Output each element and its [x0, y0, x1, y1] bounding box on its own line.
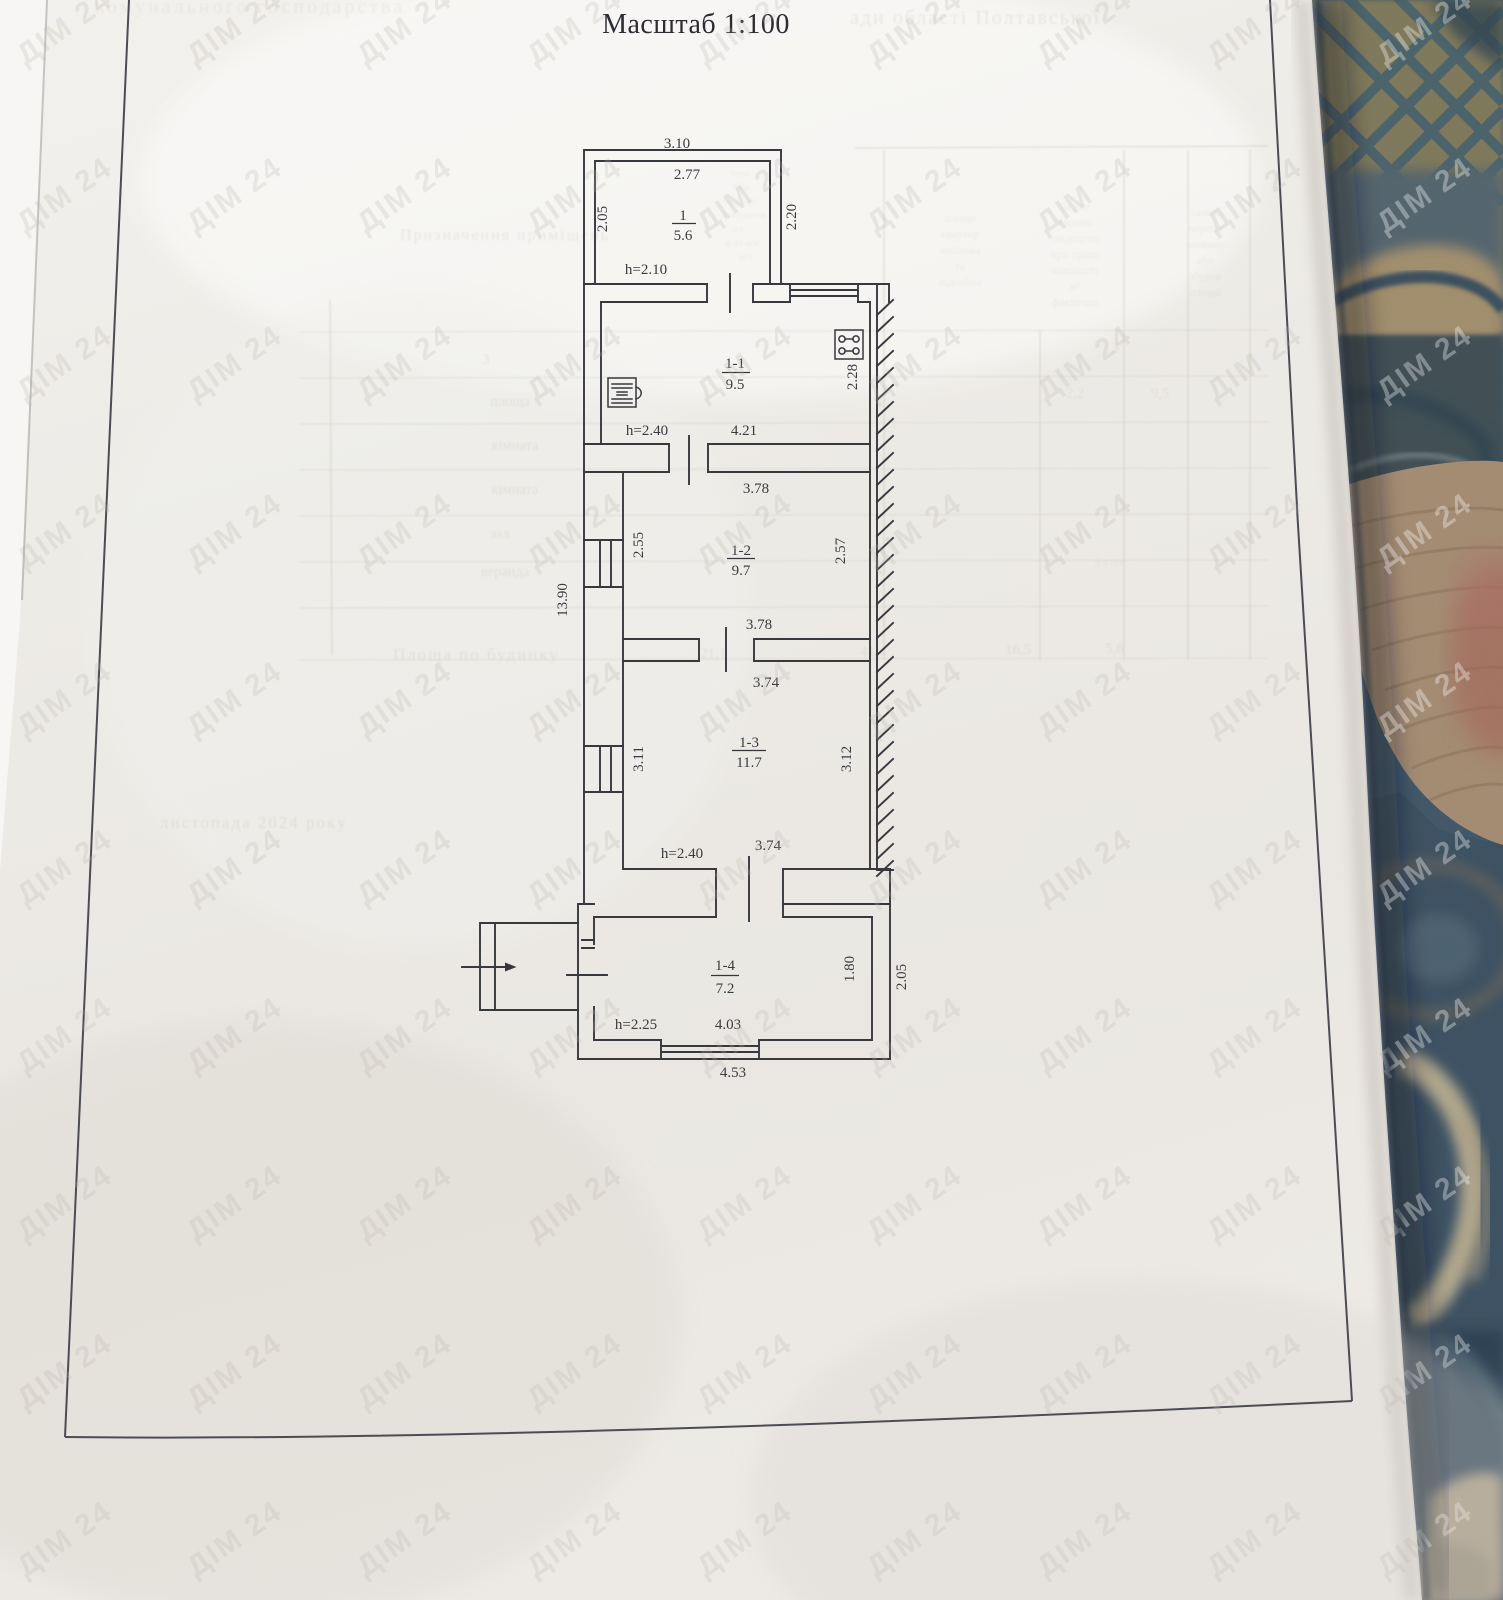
- svg-text:фактично: фактично: [1052, 297, 1099, 309]
- svg-text:2.28: 2.28: [845, 364, 861, 390]
- svg-text:1-3: 1-3: [739, 735, 759, 751]
- svg-text:3.12: 3.12: [839, 746, 855, 772]
- svg-text:2.57: 2.57: [833, 537, 849, 564]
- svg-text:9,5: 9,5: [1151, 386, 1169, 402]
- svg-text:підсобна: підсобна: [938, 277, 981, 289]
- svg-text:ановано: ановано: [1185, 239, 1225, 251]
- svg-text:5.6: 5.6: [674, 228, 693, 244]
- svg-text:3.78: 3.78: [746, 617, 772, 633]
- svg-text:Призначення приміщень: Призначення приміщень: [400, 227, 610, 244]
- svg-text:h=2.40: h=2.40: [661, 846, 703, 862]
- svg-text:13.90: 13.90: [555, 583, 571, 617]
- svg-text:16,5: 16,5: [1005, 642, 1031, 658]
- svg-text:ф в при: ф в при: [1095, 557, 1125, 568]
- svg-text:кімната: кімната: [491, 482, 539, 498]
- svg-text:та: та: [955, 261, 965, 273]
- svg-text:свідоцтво: свідоцтво: [1051, 233, 1099, 245]
- svg-text:7.2: 7.2: [716, 981, 735, 997]
- svg-text:веранда: веранда: [481, 564, 530, 580]
- svg-text:площа: площа: [490, 394, 530, 410]
- svg-text:про право: про право: [1051, 249, 1100, 261]
- svg-text:41,4: 41,4: [860, 644, 887, 660]
- svg-text:1: 1: [679, 208, 687, 224]
- svg-text:Площа по будинку: Площа по будинку: [393, 645, 560, 664]
- svg-text:1-4: 1-4: [715, 958, 735, 974]
- svg-text:3: 3: [482, 352, 489, 368]
- svg-text:h=2.40: h=2.40: [626, 423, 668, 439]
- svg-text:3.78: 3.78: [743, 481, 769, 497]
- svg-text:зал: зал: [490, 526, 510, 542]
- svg-text:вул: вул: [739, 253, 752, 263]
- svg-text:пл: пл: [733, 225, 743, 235]
- svg-text:21,1: 21,1: [700, 646, 726, 662]
- svg-text:1.80: 1.80: [842, 956, 858, 982]
- svg-text:2.55: 2.55: [631, 532, 647, 558]
- svg-text:житлова: житлова: [939, 245, 981, 257]
- svg-text:h=2.10: h=2.10: [625, 262, 667, 278]
- svg-text:5,6: 5,6: [1105, 641, 1124, 657]
- svg-text:3.10: 3.10: [664, 136, 690, 152]
- svg-text:3.11: 3.11: [631, 746, 647, 772]
- svg-text:площа: площа: [944, 213, 976, 225]
- svg-text:11.7: 11.7: [736, 755, 762, 771]
- svg-text:збудов: збудов: [1189, 271, 1222, 283]
- svg-text:2.05: 2.05: [894, 964, 910, 990]
- svg-text:2.20: 2.20: [784, 204, 800, 230]
- svg-text:4.21: 4.21: [731, 423, 757, 439]
- svg-text:листопада 2024 року: листопада 2024 року: [160, 813, 348, 832]
- svg-text:площа: площа: [1189, 287, 1221, 299]
- svg-text:9.7: 9.7: [732, 563, 751, 579]
- svg-text:власності: власності: [1052, 265, 1099, 277]
- svg-text:2.77: 2.77: [674, 167, 701, 183]
- svg-text:ф вл асн: ф вл асн: [725, 238, 759, 249]
- svg-text:або: або: [1197, 255, 1214, 267]
- svg-text:2.05: 2.05: [595, 206, 611, 232]
- svg-text:м²: м²: [1070, 281, 1081, 293]
- svg-text:кімната: кімната: [491, 438, 539, 454]
- svg-text:квартир: квартир: [941, 229, 980, 241]
